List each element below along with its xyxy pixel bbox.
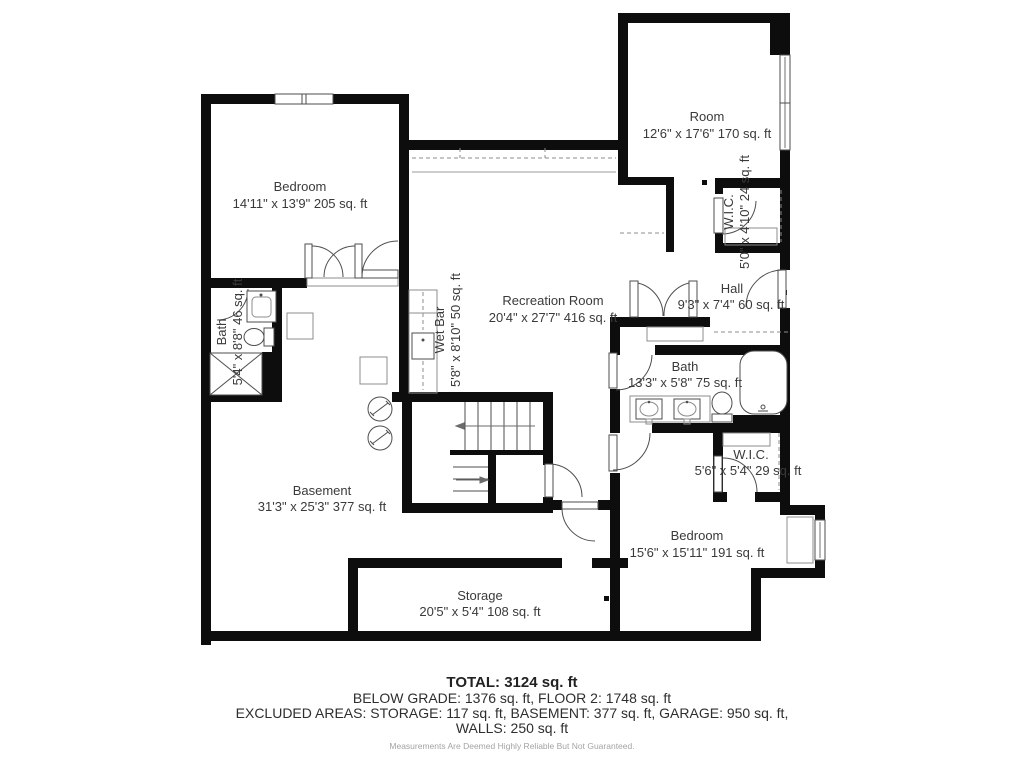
svg-text:Room: Room: [690, 109, 725, 124]
svg-text:13'3" x 5'8" 75 sq. ft: 13'3" x 5'8" 75 sq. ft: [628, 375, 742, 390]
svg-text:5'4" x 8'8" 46 sq. ft: 5'4" x 8'8" 46 sq. ft: [230, 278, 245, 385]
vanity-bath-main: [630, 396, 710, 424]
area-summary: TOTAL: 3124 sq. ft BELOW GRADE: 1376 sq.…: [236, 674, 789, 751]
svg-text:14'11" x 13'9" 205 sq. ft: 14'11" x 13'9" 205 sq. ft: [233, 196, 368, 211]
svg-text:31'3" x 25'3" 377 sq. ft: 31'3" x 25'3" 377 sq. ft: [258, 499, 387, 514]
svg-text:Basement: Basement: [293, 483, 352, 498]
floor-plan-svg: Bedroom 14'11" x 13'9" 205 sq. ft Room 1…: [0, 0, 1024, 768]
svg-text:5'0" x 4'10" 24 sq. ft: 5'0" x 4'10" 24 sq. ft: [737, 155, 752, 269]
label-room-top-right: Room 12'6" x 17'6" 170 sq. ft: [643, 109, 772, 141]
summary-excluded-areas: EXCLUDED AREAS: STORAGE: 117 sq. ft, BAS…: [236, 705, 789, 721]
summary-walls: WALLS: 250 sq. ft: [456, 720, 568, 736]
column-post: [360, 357, 387, 384]
toilet-bath-left: [244, 328, 274, 346]
floor-plan-page: Bedroom 14'11" x 13'9" 205 sq. ft Room 1…: [0, 0, 1024, 768]
svg-text:Hall: Hall: [721, 281, 744, 296]
label-bedroom-bottom-right: Bedroom 15'6" x 15'11" 191 sq. ft: [630, 528, 765, 560]
door-corridor: [562, 502, 598, 541]
window-egress-bedroom: [787, 517, 825, 563]
water-heater-symbol: [368, 426, 392, 450]
label-basement: Basement 31'3" x 25'3" 377 sq. ft: [258, 483, 387, 514]
toilet-bath-main: [712, 392, 732, 422]
closet-shelf: [647, 327, 703, 341]
label-bath-main: Bath 13'3" x 5'8" 75 sq. ft: [628, 359, 742, 390]
summary-below-grade: BELOW GRADE: 1376 sq. ft, FLOOR 2: 1748 …: [353, 690, 671, 706]
svg-text:5'6" x 5'4" 29 sq. ft: 5'6" x 5'4" 29 sq. ft: [695, 463, 802, 478]
svg-text:W.I.C.: W.I.C.: [733, 447, 768, 462]
sink-bath-left: [247, 291, 276, 322]
window-bedroom-top: [275, 94, 333, 104]
svg-text:Bath: Bath: [214, 319, 229, 346]
bathtub: [740, 351, 787, 414]
svg-text:20'5" x 5'4" 108 sq. ft: 20'5" x 5'4" 108 sq. ft: [419, 604, 541, 619]
furnace-symbol: [368, 397, 392, 421]
double-door-bedroom-tl: [305, 241, 398, 286]
door-stair-closet: [545, 464, 582, 497]
label-storage: Storage 20'5" x 5'4" 108 sq. ft: [419, 588, 541, 619]
label-bedroom-top-left: Bedroom 14'11" x 13'9" 205 sq. ft: [233, 179, 368, 211]
svg-text:15'6" x 15'11" 191 sq. ft: 15'6" x 15'11" 191 sq. ft: [630, 545, 765, 560]
stair-upper-run: [456, 402, 535, 450]
svg-text:12'6" x 17'6" 170 sq. ft: 12'6" x 17'6" 170 sq. ft: [643, 126, 772, 141]
svg-text:9'3" x 7'4" 60 sq. ft: 9'3" x 7'4" 60 sq. ft: [678, 297, 785, 312]
svg-text:Wet Bar: Wet Bar: [432, 306, 447, 353]
svg-text:20'4" x 27'7" 416 sq. ft: 20'4" x 27'7" 416 sq. ft: [489, 310, 618, 325]
label-recreation-room: Recreation Room 20'4" x 27'7" 416 sq. ft: [489, 293, 618, 325]
svg-text:W.I.C.: W.I.C.: [721, 194, 736, 229]
window-room-right: [780, 55, 790, 150]
door-bedroom-br: [609, 433, 650, 471]
stair-lower-run: [453, 467, 488, 491]
summary-disclaimer: Measurements Are Deemed Highly Reliable …: [389, 741, 634, 751]
svg-text:Storage: Storage: [457, 588, 503, 603]
summary-total: TOTAL: 3124 sq. ft: [446, 674, 577, 691]
svg-text:Bedroom: Bedroom: [274, 179, 327, 194]
column-post: [287, 313, 313, 339]
room-labels: Bedroom 14'11" x 13'9" 205 sq. ft Room 1…: [214, 109, 802, 619]
svg-text:Bedroom: Bedroom: [671, 528, 724, 543]
fixtures: [210, 190, 787, 490]
svg-text:Bath: Bath: [672, 359, 699, 374]
svg-text:5'8" x 8'10" 50 sq. ft: 5'8" x 8'10" 50 sq. ft: [448, 273, 463, 387]
svg-text:Recreation Room: Recreation Room: [502, 293, 603, 308]
